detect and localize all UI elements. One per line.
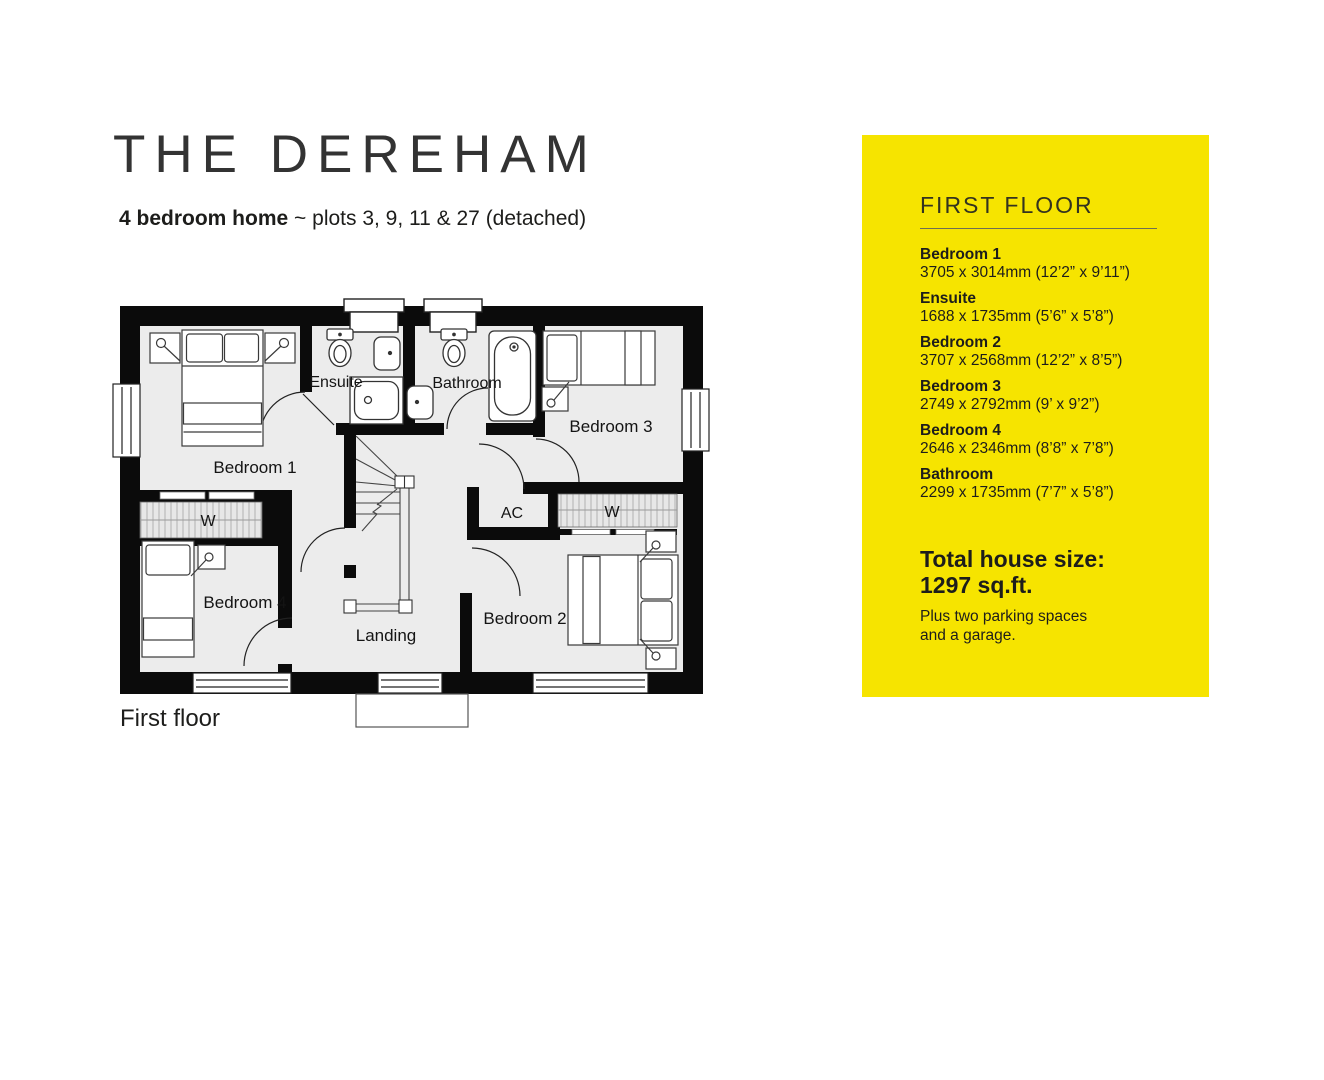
bedside-table	[150, 333, 180, 363]
room-spec-dims: 2646 x 2346mm (8’8” x 7’8”)	[920, 440, 1157, 458]
room-label-bedroom3: Bedroom 3	[569, 417, 652, 436]
window-bottom-bed2	[533, 673, 648, 693]
bedside-table	[646, 531, 676, 552]
room-spec-dims: 2299 x 1735mm (7’7” x 5’8”)	[920, 484, 1157, 502]
subtitle-rest: ~ plots 3, 9, 11 & 27 (detached)	[288, 207, 586, 230]
room-spec-row: Bedroom 2 3707 x 2568mm (12’2” x 8’5”)	[920, 334, 1157, 369]
room-spec-name: Bedroom 3	[920, 378, 1157, 396]
floor-plan-svg: Bedroom 1 Ensuite Bathroom Bedroom 3 Bed…	[110, 290, 710, 738]
room-spec-row: Bathroom 2299 x 1735mm (7’7” x 5’8”)	[920, 466, 1157, 501]
room-spec-dims: 3707 x 2568mm (12’2” x 8’5”)	[920, 352, 1157, 370]
subtitle-bold: 4 bedroom home	[119, 207, 288, 230]
double-bed-icon	[182, 330, 263, 446]
total-label: Total house size:	[920, 546, 1157, 572]
toilet-icon	[327, 329, 353, 367]
page-subtitle: 4 bedroom home ~ plots 3, 9, 11 & 27 (de…	[119, 207, 586, 231]
page-title: THE DEREHAM	[113, 124, 598, 185]
porch-outline	[356, 694, 468, 727]
window-left	[113, 384, 140, 457]
note-line2: and a garage.	[920, 626, 1157, 645]
room-label-bedroom1: Bedroom 1	[213, 458, 296, 477]
bedside-table	[265, 333, 295, 363]
parking-note: Plus two parking spaces and a garage.	[920, 607, 1157, 645]
room-label-bathroom: Bathroom	[432, 375, 501, 392]
room-spec-name: Ensuite	[920, 290, 1157, 308]
first-floor-panel: FIRST FLOOR Bedroom 1 3705 x 3014mm (12’…	[862, 135, 1209, 697]
room-spec-row: Ensuite 1688 x 1735mm (5’6” x 5’8”)	[920, 290, 1157, 325]
room-label-landing: Landing	[356, 626, 417, 645]
room-label-bedroom2: Bedroom 2	[483, 609, 566, 628]
room-spec-row: Bedroom 1 3705 x 3014mm (12’2” x 9’11”)	[920, 246, 1157, 281]
sink-icon	[407, 386, 433, 419]
window-bottom-landing	[378, 673, 442, 693]
room-spec-dims: 2749 x 2792mm (9’ x 9’2”)	[920, 396, 1157, 414]
room-spec-name: Bedroom 1	[920, 246, 1157, 264]
note-line1: Plus two parking spaces	[920, 607, 1157, 626]
room-spec-name: Bedroom 2	[920, 334, 1157, 352]
single-bed-icon	[142, 541, 194, 657]
panel-divider	[920, 228, 1157, 229]
sink-icon	[374, 337, 400, 370]
lamp-icon	[547, 399, 555, 407]
page-root: THE DEREHAM 4 bedroom home ~ plots 3, 9,…	[0, 0, 1324, 1080]
room-spec-dims: 1688 x 1735mm (5’6” x 5’8”)	[920, 308, 1157, 326]
panel-heading: FIRST FLOOR	[920, 192, 1157, 219]
room-label-wardrobe-right: W	[604, 504, 620, 521]
single-bed-icon	[543, 331, 655, 385]
room-spec-dims: 3705 x 3014mm (12’2” x 9’11”)	[920, 264, 1157, 282]
lamp-icon	[652, 541, 660, 549]
toilet-icon	[441, 329, 467, 367]
total-value: 1297 sq.ft.	[920, 572, 1157, 598]
room-spec-name: Bedroom 4	[920, 422, 1157, 440]
room-spec-name: Bathroom	[920, 466, 1157, 484]
plan-caption: First floor	[120, 705, 220, 733]
room-label-ac: AC	[501, 505, 523, 522]
room-label-wardrobe-left: W	[200, 513, 216, 530]
total-house-size: Total house size: 1297 sq.ft.	[920, 546, 1157, 598]
window-right	[682, 389, 709, 451]
double-bed-icon	[568, 555, 678, 645]
room-spec-row: Bedroom 4 2646 x 2346mm (8’8” x 7’8”)	[920, 422, 1157, 457]
lamp-icon	[652, 652, 660, 660]
room-label-bedroom4: Bedroom 4	[203, 593, 286, 612]
room-label-ensuite: Ensuite	[309, 374, 362, 391]
lamp-icon	[205, 553, 213, 561]
window-bottom-bed4	[193, 673, 291, 693]
room-spec-row: Bedroom 3 2749 x 2792mm (9’ x 9’2”)	[920, 378, 1157, 413]
